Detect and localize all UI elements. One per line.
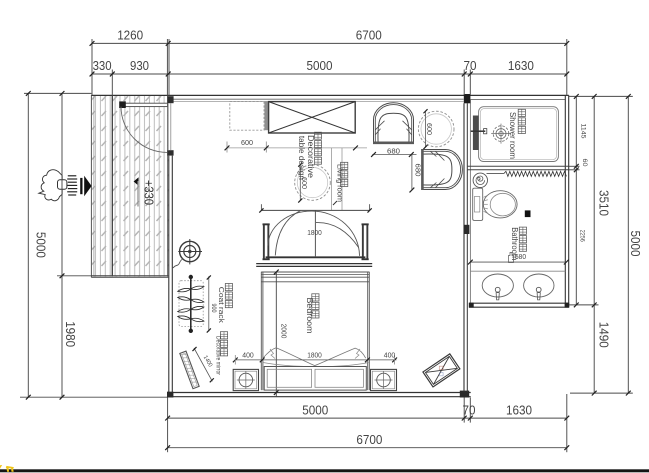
svg-text:2256: 2256 [578,230,585,242]
svg-text:6700: 6700 [356,432,382,447]
svg-text:1980: 1980 [63,321,78,347]
svg-text:60: 60 [581,159,588,168]
svg-text:930: 930 [130,58,149,73]
svg-text:1490: 1490 [597,322,612,348]
svg-text:Shower room: Shower room [508,112,517,159]
svg-text:2000: 2000 [279,324,288,339]
svg-text:680: 680 [387,147,400,156]
svg-text:3510: 3510 [597,190,612,216]
svg-text:1400: 1400 [202,355,213,368]
svg-text:5000: 5000 [34,232,49,258]
svg-text:5000: 5000 [302,403,328,418]
svg-text:1630: 1630 [508,58,534,73]
svg-text:70: 70 [464,58,477,73]
svg-text:Living room: Living room [335,164,344,202]
svg-text:5000: 5000 [307,58,333,73]
svg-text:5000: 5000 [628,231,643,257]
svg-text:Decorative: Decorative [306,135,315,178]
svg-text:680: 680 [413,164,422,177]
svg-text:1800: 1800 [307,351,322,360]
svg-text:600: 600 [425,123,434,135]
svg-text:6700: 6700 [356,28,382,43]
svg-text:600: 600 [241,138,253,147]
svg-text:Coat rack: Coat rack [217,287,226,323]
svg-text:Bedroom: Bedroom [305,298,314,334]
svg-text:1630: 1630 [506,403,532,418]
svg-text:Decorative mirror: Decorative mirror [215,336,221,375]
svg-text:70: 70 [463,403,476,418]
svg-text:580: 580 [515,254,526,261]
svg-text:400: 400 [242,351,254,360]
svg-text:1260: 1260 [117,28,143,43]
svg-text:table design: table design [297,136,306,180]
svg-text:1800: 1800 [307,228,322,237]
svg-text:+330: +330 [141,180,155,205]
svg-text:400: 400 [384,351,396,360]
svg-text:1145: 1145 [579,124,586,139]
svg-text:330: 330 [93,58,112,73]
svg-text:900: 900 [210,304,217,313]
